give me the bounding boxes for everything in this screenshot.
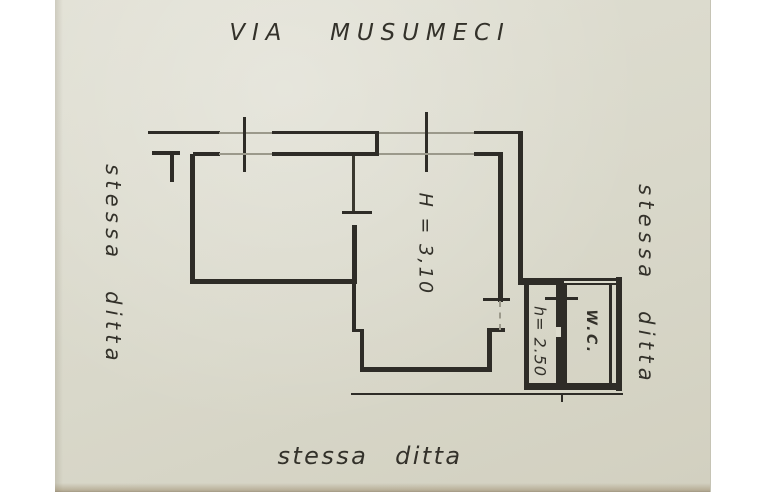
partition-opening-tick	[342, 211, 372, 214]
window-inner-line-2	[379, 153, 475, 155]
main-room-southeast-step	[487, 328, 505, 332]
partition-wall-upper	[352, 156, 355, 212]
corridor-west-wall	[524, 285, 529, 389]
right-neighbour-label: stessa ditta	[634, 170, 658, 400]
scanned-floor-plan: VIA MUSUMECI H = 3,10 h= 2.50 W.C.	[0, 0, 764, 492]
left-room-west-wall	[190, 154, 195, 284]
south-boundary-tick	[561, 393, 563, 402]
neighbour-wall-fragment-v	[170, 155, 174, 182]
wc-east-wall-outer	[616, 277, 622, 391]
wall-top-outer-right	[474, 131, 523, 134]
wall-top-outer-mid	[272, 131, 379, 134]
left-room-south-wall	[190, 279, 357, 284]
wall-top-inner-left	[193, 152, 220, 156]
main-room-west-wall-upper	[352, 284, 356, 331]
door-opening-tick-main	[483, 298, 510, 301]
main-room-west-wall-lower	[360, 331, 364, 371]
window-tick-2	[425, 112, 428, 172]
bottom-neighbour-label: stessa ditta	[235, 442, 505, 470]
main-room-southeast-wall	[487, 330, 492, 371]
door-opening-dash-main	[499, 301, 501, 330]
door-opening-tick-wc	[545, 297, 578, 300]
wc-west-wall-notch	[556, 327, 561, 337]
neighbour-wall-fragment-h	[152, 151, 180, 155]
wc-room-label: W.C.	[583, 294, 599, 370]
corridor-height-label: h= 2.50	[531, 299, 550, 385]
main-room-east-wall-outer	[518, 131, 523, 282]
main-room-height-label: H = 3,10	[415, 187, 437, 302]
window-inner-line-1	[219, 153, 273, 155]
window-tick-1	[243, 117, 246, 172]
paper-bottom-shadow	[55, 483, 710, 492]
south-boundary-line	[351, 393, 623, 395]
paper-left-shadow	[55, 0, 63, 492]
left-neighbour-label: stessa ditta	[101, 150, 125, 380]
wc-north-wall-cavity	[564, 281, 616, 283]
partition-wall-lower	[352, 225, 357, 284]
main-room-east-wall-inner	[498, 152, 503, 302]
window-sill-line-1	[219, 132, 273, 134]
wall-top-outer-left	[148, 131, 220, 134]
main-room-south-wall	[360, 367, 492, 372]
paper-sheet	[55, 0, 711, 492]
wc-east-wall-inner	[609, 285, 612, 384]
street-name-label: VIA MUSUMECI	[160, 20, 580, 46]
wall-top-inner-mid	[272, 152, 379, 156]
